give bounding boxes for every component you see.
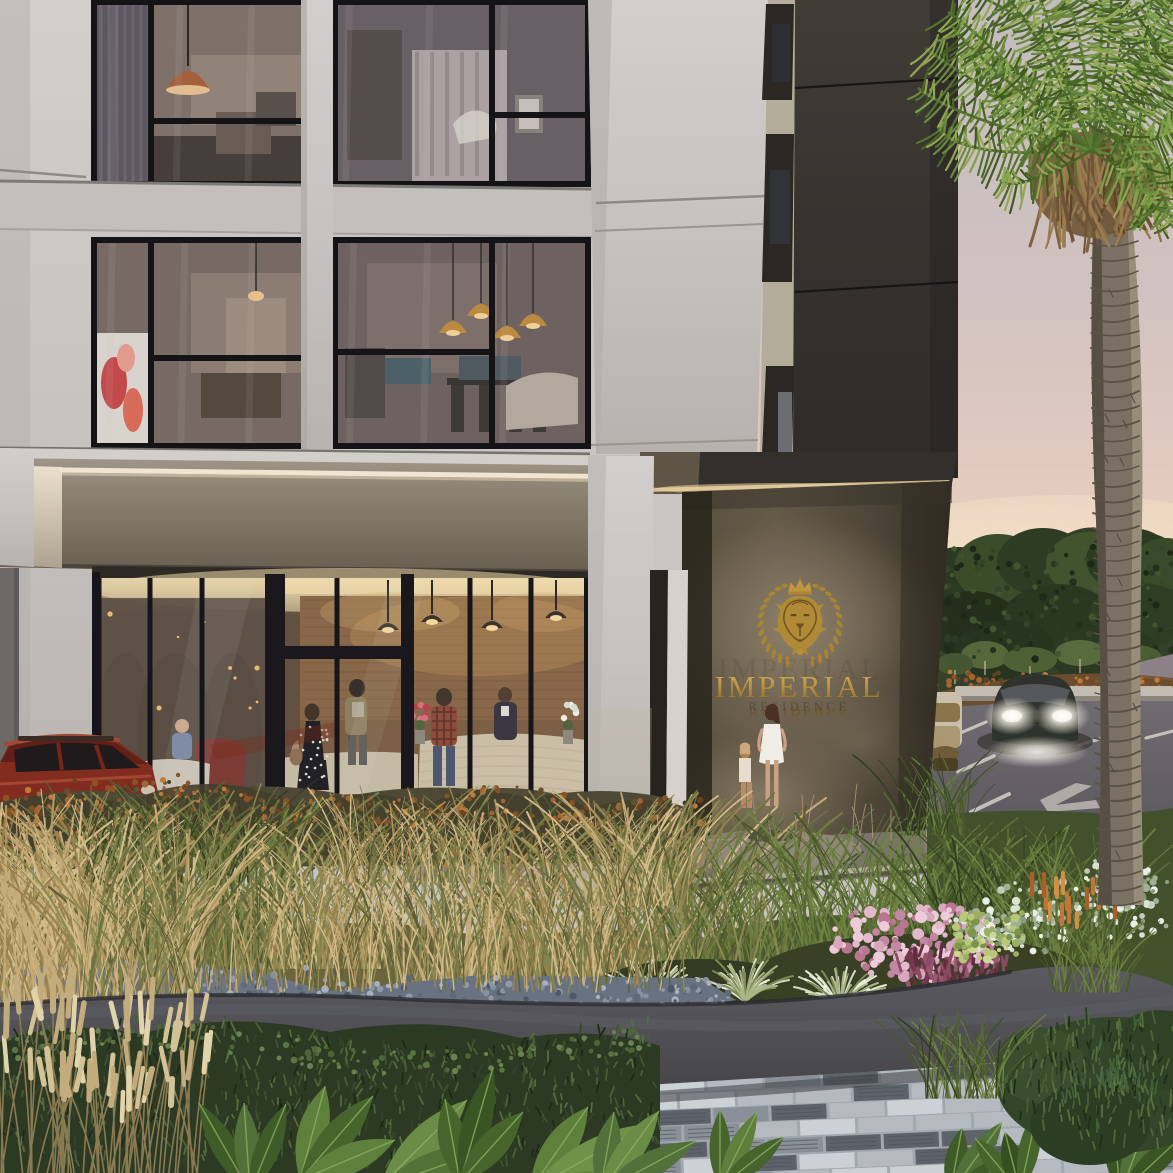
svg-text:RESIDENCE: RESIDENCE [749,705,850,719]
svg-text:IMPERIAL: IMPERIAL [715,669,884,704]
